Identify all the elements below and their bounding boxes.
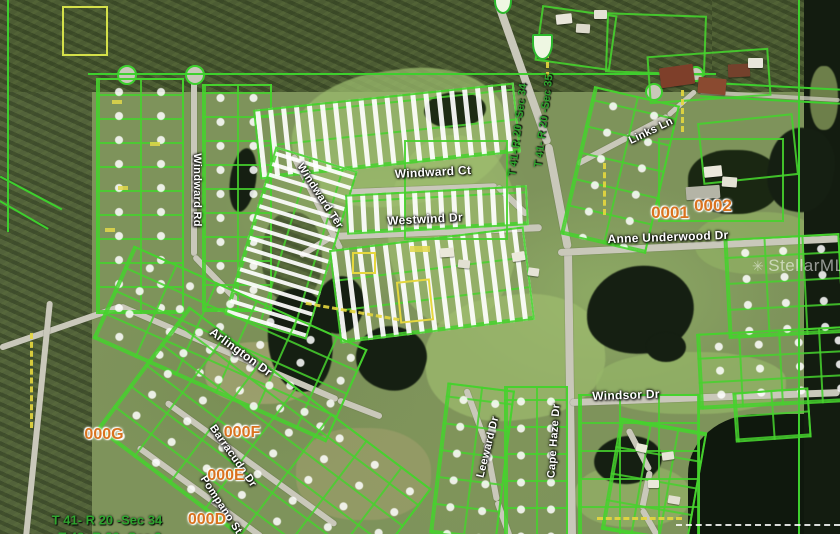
section-line [88,73,716,75]
cul-de-sac [185,65,205,85]
parcel-id-000g: 000G [84,426,123,444]
building [527,267,539,276]
section-label-t41-r20-sec34-bottom: T 41- R 20 -Sec 34 [52,513,163,528]
parcel-id-000f: 000F [224,424,260,442]
water-body [646,332,686,362]
building [648,480,659,488]
stellarmls-watermark-text: StellarMLS [768,256,840,276]
highlight-mark [150,142,160,146]
building [697,77,726,95]
parcel-grid [723,233,840,339]
highlight-mark [410,246,430,252]
highlight-parcel [352,252,376,274]
building [458,259,471,268]
building [728,63,751,77]
building [440,248,455,258]
boundary-dashed-white [676,524,840,526]
parcel-id-000d: 000D [188,511,226,529]
street-label-windward-rd: Windward Rd [191,153,203,226]
highlight-dashes [30,333,33,428]
highlight-dashes [597,517,682,520]
building [594,10,607,19]
parcel-id-000e: 000E [207,467,244,485]
building [662,451,675,461]
highlight-dashes [681,90,684,132]
highlight-mark [105,228,115,232]
aerial-map[interactable]: Windward Rd Windward Ter Windward Ct Wes… [0,0,840,534]
building [748,58,763,68]
parcel-id-0001: 0001 [651,203,689,223]
building [576,24,591,34]
highlight-dashes [603,163,606,215]
stellarmls-logo-icon: ✳ [752,258,764,275]
highlight-parcel [396,278,434,323]
building [722,176,738,187]
building [703,165,722,178]
highlight-mark [118,186,128,190]
highlight-mark [112,100,122,104]
parcel-id-0002: 0002 [694,196,732,216]
section-label-t42-r20-sec3-bottom: T 42- R 20 -Sec 3 [58,530,161,534]
building [556,13,573,25]
stellarmls-watermark: ✳ StellarMLS [752,256,840,276]
street-label-windsor-dr: Windsor Dr [592,387,660,403]
section-line [7,0,9,232]
parcel-outline-yellow [62,6,108,56]
